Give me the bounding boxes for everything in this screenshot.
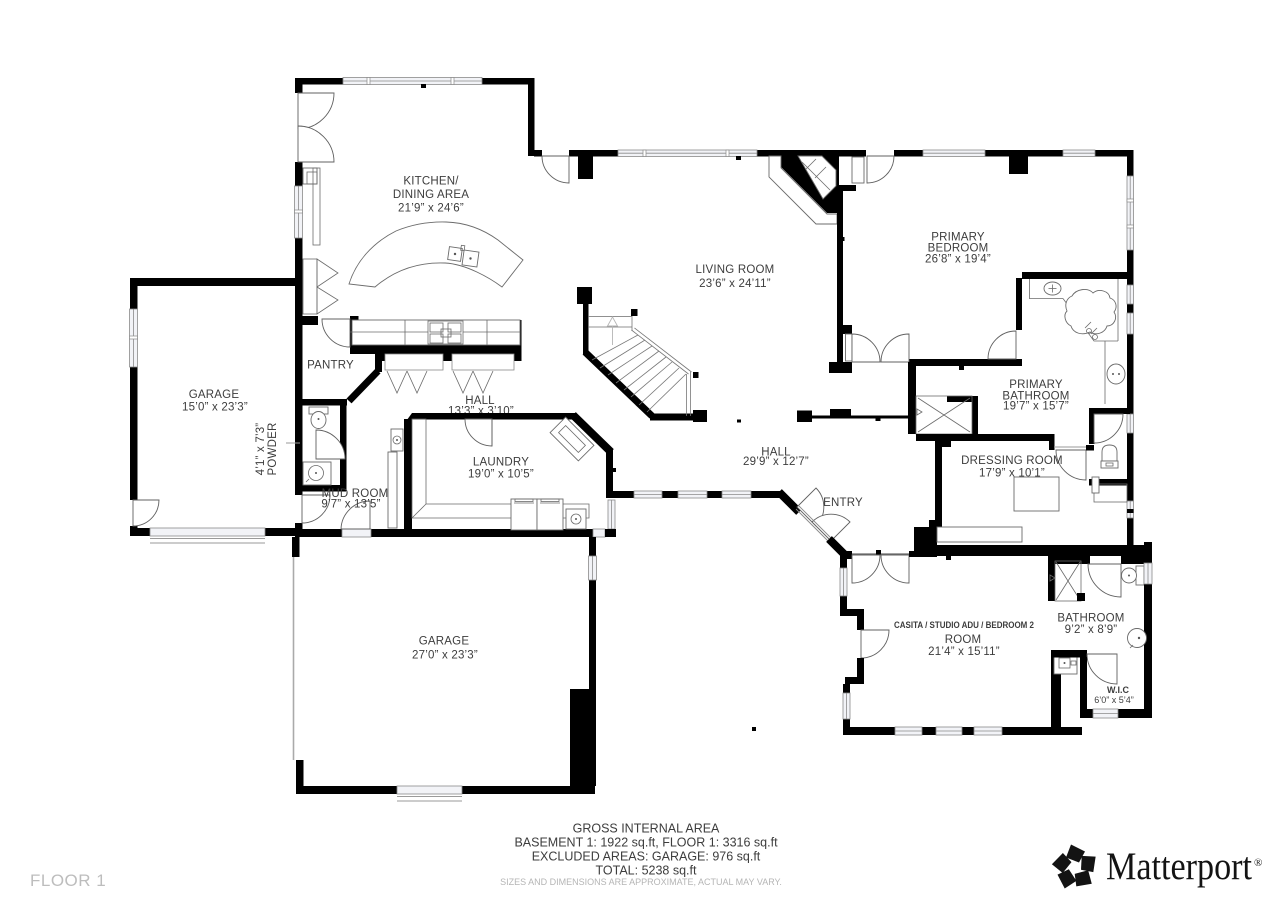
svg-text:FLOOR 1: FLOOR 1 <box>30 871 106 890</box>
svg-text:9’2” x 8’9”: 9’2” x 8’9” <box>1065 624 1118 636</box>
svg-text:EXCLUDED AREAS: GARAGE: 976 sq: EXCLUDED AREAS: GARAGE: 976 sq.ft <box>532 850 761 864</box>
svg-text:29’9” x 12’7”: 29’9” x 12’7” <box>743 456 809 468</box>
svg-text:GARAGE: GARAGE <box>189 389 240 401</box>
svg-text:Matterport: Matterport <box>1106 845 1252 888</box>
svg-text:15’0” x 23’3”: 15’0” x 23’3” <box>182 402 248 414</box>
svg-text:GROSS INTERNAL AREA: GROSS INTERNAL AREA <box>573 822 720 836</box>
svg-text:GARAGE: GARAGE <box>419 636 470 648</box>
svg-text:DINING AREA: DINING AREA <box>393 189 469 201</box>
svg-text:21’4” x 15’11”: 21’4” x 15’11” <box>928 646 1000 658</box>
svg-text:PRIMARY: PRIMARY <box>1009 379 1063 391</box>
svg-text:26’8” x 19’4”: 26’8” x 19’4” <box>925 254 991 266</box>
svg-text:ENTRY: ENTRY <box>823 497 863 509</box>
svg-text:KITCHEN/: KITCHEN/ <box>403 176 459 188</box>
svg-text:POWDER: POWDER <box>267 423 279 476</box>
svg-text:®: ® <box>1254 857 1262 869</box>
svg-text:21’9” x 24’6”: 21’9” x 24’6” <box>398 203 464 215</box>
svg-text:BATHROOM: BATHROOM <box>1057 613 1124 625</box>
svg-text:19’0” x 10’5”: 19’0” x 10’5” <box>468 469 534 481</box>
svg-text:PANTRY: PANTRY <box>307 360 354 372</box>
svg-text:6’0” x 5’4”: 6’0” x 5’4” <box>1094 695 1134 705</box>
svg-text:9’7” x 13’5”: 9’7” x 13’5” <box>321 499 380 511</box>
svg-text:19’7” x 15’7”: 19’7” x 15’7” <box>1003 401 1069 413</box>
svg-text:17’9” x 10’1”: 17’9” x 10’1” <box>979 468 1045 480</box>
svg-text:SIZES AND DIMENSIONS ARE APPRO: SIZES AND DIMENSIONS ARE APPROXIMATE, AC… <box>500 877 782 887</box>
svg-text:CASITA / STUDIO ADU / BEDROOM: CASITA / STUDIO ADU / BEDROOM 2 <box>894 620 1034 631</box>
svg-text:DRESSING ROOM: DRESSING ROOM <box>961 455 1063 467</box>
svg-text:BASEMENT 1: 1922 sq.ft, FLOOR: BASEMENT 1: 1922 sq.ft, FLOOR 1: 3316 sq… <box>514 836 778 850</box>
svg-text:LAUNDRY: LAUNDRY <box>473 457 529 469</box>
svg-text:TOTAL: 5238 sq.ft: TOTAL: 5238 sq.ft <box>596 864 698 878</box>
svg-text:ROOM: ROOM <box>945 634 982 646</box>
svg-text:27’0” x 23’3”: 27’0” x 23’3” <box>412 650 478 662</box>
svg-text:LIVING ROOM: LIVING ROOM <box>696 264 775 276</box>
svg-text:23’6” x 24’11”: 23’6” x 24’11” <box>699 278 771 290</box>
svg-text:4’1” x 7’3”: 4’1” x 7’3” <box>255 423 267 476</box>
svg-text:W.I.C: W.I.C <box>1107 685 1129 695</box>
